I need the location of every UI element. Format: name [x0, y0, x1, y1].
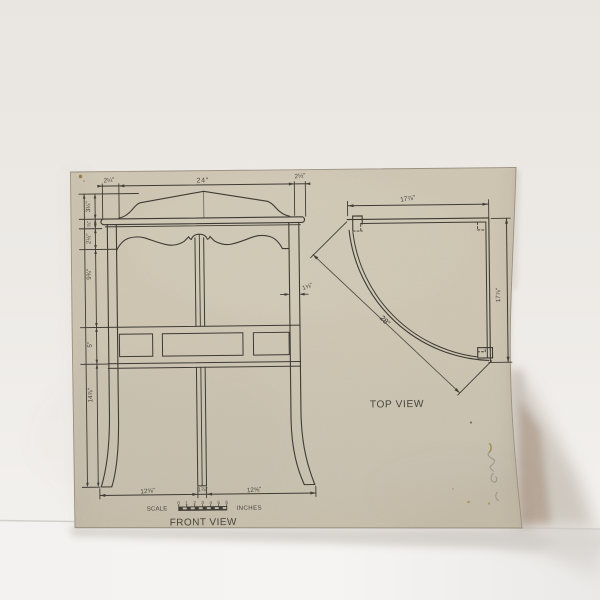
svg-text:24": 24" — [197, 177, 209, 184]
svg-text:14⅞": 14⅞" — [87, 388, 94, 403]
svg-text:INCHES: INCHES — [237, 505, 263, 512]
svg-text:12⅝": 12⅝" — [140, 487, 155, 495]
svg-text:2¼": 2¼" — [103, 177, 115, 185]
svg-text:FRONT VIEW: FRONT VIEW — [170, 517, 237, 529]
svg-text:1⅞": 1⅞" — [197, 487, 207, 493]
svg-text:⅞": ⅞" — [87, 221, 93, 228]
svg-text:17⅞": 17⅞" — [495, 288, 502, 302]
svg-text:12⅝": 12⅝" — [247, 486, 262, 494]
svg-text:3¼": 3¼" — [85, 201, 92, 212]
svg-text:TOP VIEW: TOP VIEW — [370, 399, 424, 411]
svg-text:SCALE: SCALE — [147, 505, 168, 512]
svg-text:5": 5" — [87, 342, 94, 348]
svg-text:2½": 2½" — [294, 171, 306, 180]
svg-text:9¾": 9¾" — [86, 269, 93, 280]
svg-text:2½": 2½" — [85, 233, 92, 244]
